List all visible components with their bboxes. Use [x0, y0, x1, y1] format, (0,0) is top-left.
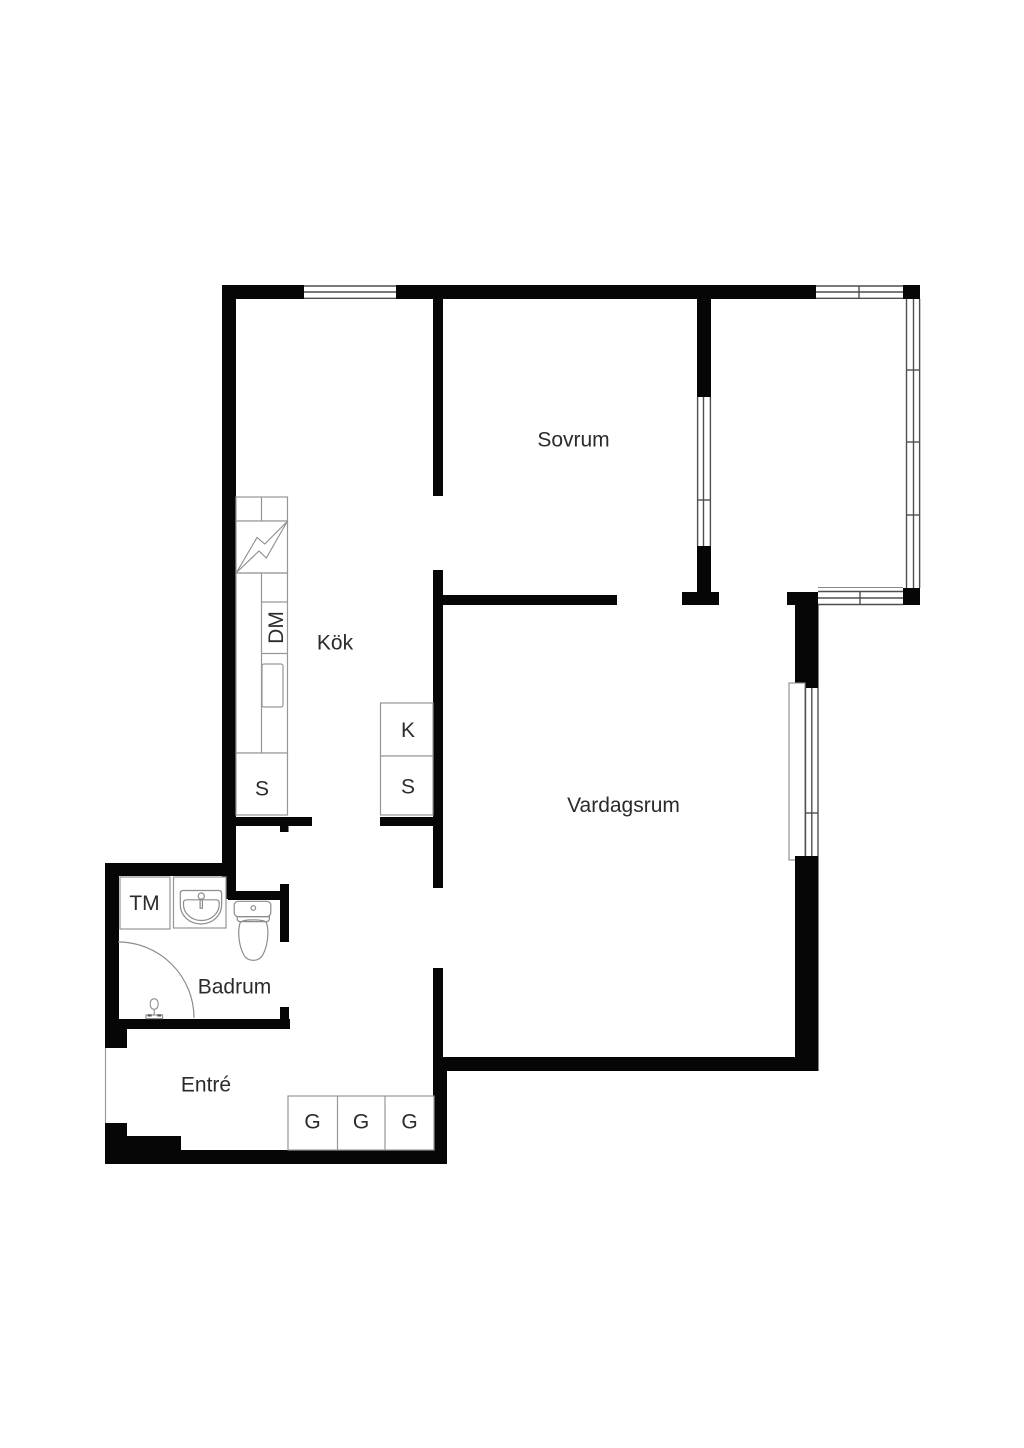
svg-text:DM: DM [265, 611, 288, 644]
svg-text:Vardagsrum: Vardagsrum [567, 794, 680, 817]
svg-text:K: K [401, 719, 415, 742]
svg-text:G: G [304, 1111, 320, 1134]
svg-text:S: S [401, 776, 415, 799]
svg-text:Kök: Kök [317, 632, 354, 655]
svg-text:TM: TM [129, 892, 159, 915]
svg-text:Badrum: Badrum [198, 976, 272, 999]
svg-text:Entré: Entré [181, 1074, 231, 1097]
svg-text:Sovrum: Sovrum [537, 429, 609, 452]
svg-text:S: S [255, 778, 269, 801]
svg-text:G: G [353, 1111, 369, 1134]
svg-text:G: G [401, 1111, 417, 1134]
